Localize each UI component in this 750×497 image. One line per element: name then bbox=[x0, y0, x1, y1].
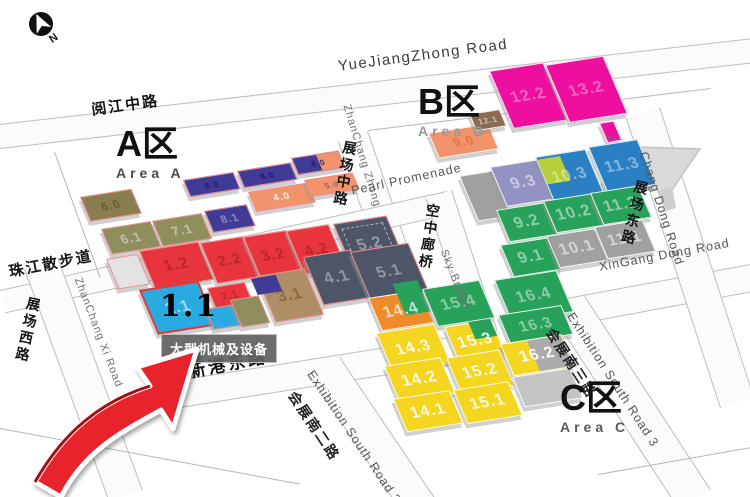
hall-label: 6.1 bbox=[118, 229, 145, 247]
area-title: B区 bbox=[418, 84, 487, 120]
hall-14.1[interactable]: 14.1 bbox=[393, 390, 463, 432]
hall-label: 3.1 bbox=[274, 285, 306, 306]
hall-label: 7.1 bbox=[169, 221, 196, 239]
hall-label: 4.1 bbox=[321, 267, 353, 288]
hall-label: 16.4 bbox=[513, 285, 555, 308]
hall-label: 8.0 bbox=[259, 170, 277, 181]
hall-label: 9.1 bbox=[515, 247, 547, 268]
hall-8.0[interactable]: 8.0 bbox=[183, 172, 241, 197]
hall-label: 14.1 bbox=[407, 400, 449, 423]
hall-label: 8.0 bbox=[203, 179, 221, 190]
area-subtitle: Area B bbox=[418, 123, 487, 139]
hall-label: 14.2 bbox=[399, 368, 441, 391]
hall-label: 14.4 bbox=[380, 299, 422, 322]
area-label-A: A区Area A bbox=[116, 126, 185, 181]
hall-label: 4.0 bbox=[271, 191, 292, 204]
hall-label: 13.2 bbox=[565, 78, 607, 101]
hall-label: 12.2 bbox=[507, 84, 549, 107]
hall-label: 1.2 bbox=[161, 255, 193, 276]
area-title: C区 bbox=[560, 380, 629, 416]
hall-8.1[interactable]: 8.1 bbox=[204, 204, 256, 233]
road-line bbox=[0, 428, 300, 485]
area-subtitle: Area C bbox=[560, 419, 629, 435]
hall-label: 10.2 bbox=[553, 202, 595, 225]
hall-label: 6.0 bbox=[98, 197, 123, 213]
hall-label: 15.3 bbox=[454, 330, 496, 353]
area-label-C: C区Area C bbox=[560, 380, 629, 435]
hall-label: 8.1 bbox=[218, 211, 241, 225]
hall-label: 15.2 bbox=[459, 361, 501, 384]
hall-label: 3.2 bbox=[258, 245, 288, 265]
hall-6.0[interactable]: 6.0 bbox=[80, 189, 142, 222]
hall-label: 9.2 bbox=[511, 212, 543, 233]
hall-label: 9.3 bbox=[508, 172, 540, 193]
area-title: A区 bbox=[116, 126, 185, 162]
hall-label: 10.3 bbox=[549, 164, 591, 187]
area-subtitle: Area A bbox=[116, 165, 185, 181]
hall-tooltip: 大型机械及设备 bbox=[161, 334, 277, 363]
north-label: N bbox=[47, 31, 60, 45]
hall-label: 14.3 bbox=[392, 337, 434, 360]
area-label-B: B区Area B bbox=[418, 84, 487, 139]
hall-label: 11.3 bbox=[602, 155, 643, 177]
hall-15.1[interactable]: 15.1 bbox=[453, 381, 523, 424]
hall-label: 5.1 bbox=[373, 261, 405, 282]
north-arrow-icon: N bbox=[0, 0, 80, 60]
hall-label: 10.1 bbox=[556, 237, 598, 260]
exhibition-complex-map: N 1.1 大型机械及设备 6.08.08.08.04.05.06.17.18.… bbox=[0, 0, 750, 497]
selected-hall-badge: 1.1 bbox=[160, 292, 218, 322]
hall-8.0[interactable]: 8.0 bbox=[237, 163, 298, 189]
hall-label: 2.2 bbox=[215, 250, 245, 270]
hall-4.0[interactable]: 4.0 bbox=[248, 183, 316, 212]
hall-label: 15.1 bbox=[467, 391, 509, 414]
